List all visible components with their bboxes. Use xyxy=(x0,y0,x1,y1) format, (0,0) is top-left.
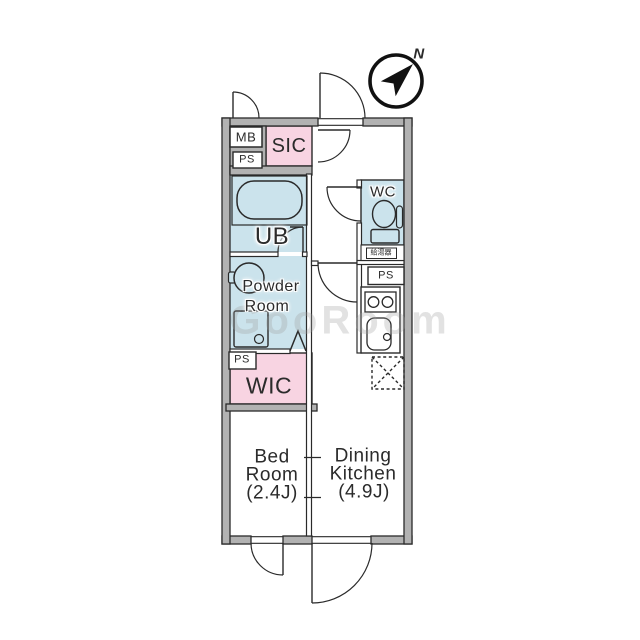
bedroom-balcony-door-arc xyxy=(251,543,283,575)
bed-room-size-label: (2.4J) xyxy=(246,484,298,503)
powder-room-label-line1: Powder xyxy=(242,279,299,295)
wic-bedroom-wall xyxy=(226,404,317,411)
unit-bath-label: UB xyxy=(255,225,289,249)
wc-room-label: WC xyxy=(370,185,396,200)
water-heater-label: 給湯器 xyxy=(371,250,392,257)
mb-label: MB xyxy=(236,131,257,144)
ps-label-wic: PS xyxy=(234,355,250,366)
dining-kitchen-size-label: (4.9J) xyxy=(338,483,390,502)
toilet-icon xyxy=(371,201,403,244)
dk-balcony-door-arc xyxy=(312,543,372,603)
north-label: N xyxy=(413,47,424,62)
ps-label-kitchen: PS xyxy=(378,271,394,282)
mb-door-arc xyxy=(233,92,259,118)
sic-room-label: SIC xyxy=(272,136,307,156)
entrance-door-arc xyxy=(320,73,365,118)
compass-icon xyxy=(370,55,422,107)
wic-room-label: WIC xyxy=(246,375,292,398)
ps-label-top: PS xyxy=(239,155,255,166)
bathtub-icon xyxy=(237,181,302,219)
powder-room-label-line2: Room xyxy=(245,299,290,315)
floorplan-canvas: GooRoom MB PS SIC UB WC 給湯器 Powder Room … xyxy=(0,0,640,640)
